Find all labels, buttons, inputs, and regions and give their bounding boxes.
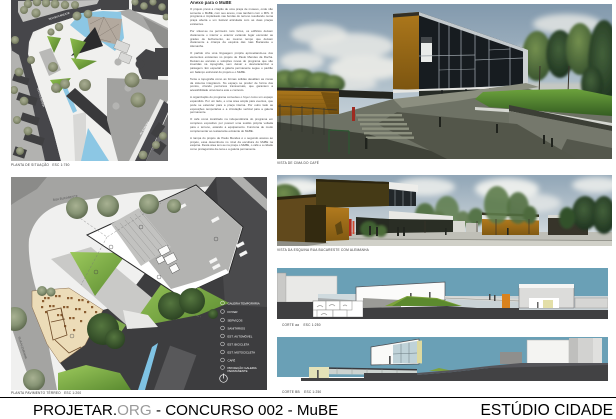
svg-text:EST. MOTOCICLETA: EST. MOTOCICLETA bbox=[228, 350, 256, 354]
svg-text:EST. AUTOMÓVEL: EST. AUTOMÓVEL bbox=[228, 333, 253, 338]
svg-text:FOYER: FOYER bbox=[228, 310, 238, 314]
svg-text:SANITÁRIOS: SANITÁRIOS bbox=[228, 326, 246, 330]
svg-text:EST. BICICLETA: EST. BICICLETA bbox=[228, 342, 250, 346]
svg-text:PERMANENTE: PERMANENTE bbox=[228, 369, 248, 373]
svg-text:CAFÉ: CAFÉ bbox=[228, 357, 236, 362]
svg-text:SERVIÇOS: SERVIÇOS bbox=[228, 318, 243, 322]
svg-text:GALERIA TEMPORÁRIA: GALERIA TEMPORÁRIA bbox=[228, 301, 260, 305]
